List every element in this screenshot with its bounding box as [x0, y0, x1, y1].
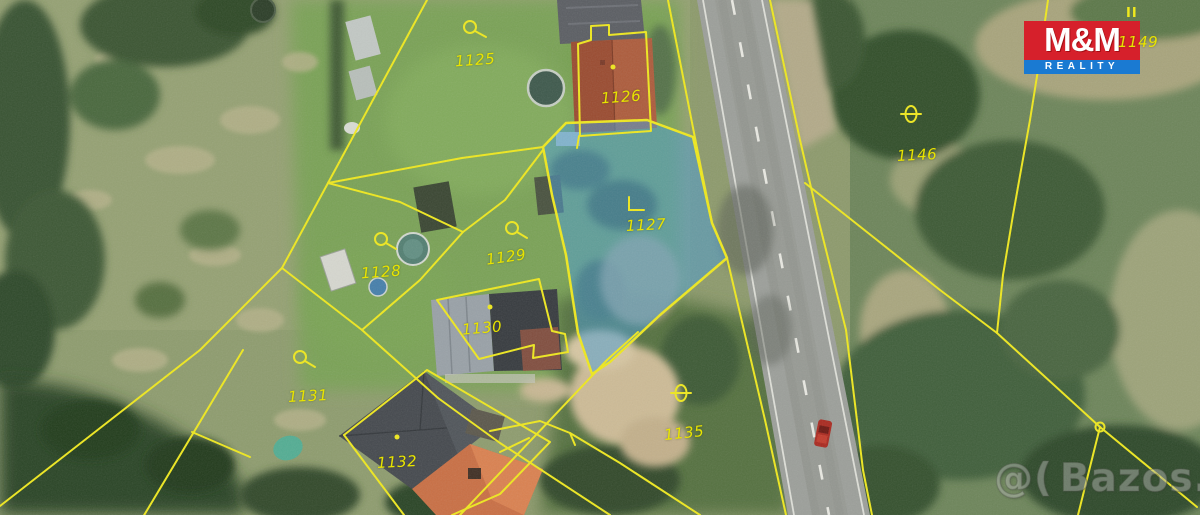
photo-grain: [0, 0, 1200, 515]
parcel-label-1125: 1125: [454, 50, 495, 71]
watermark-text: Bazos.cz: [1060, 456, 1200, 501]
parcel-label-1128: 1128: [360, 262, 401, 283]
aerial-listing-photo: 1125 1126 1127 1128 1129 1130 1131 1132 …: [0, 0, 1200, 515]
double-bar-mark: II: [1126, 6, 1138, 21]
parcel-label-1132: 1132: [377, 452, 418, 472]
parcel-label-1127: 1127: [626, 215, 667, 235]
logo-reality-text: REALITY: [1024, 60, 1140, 74]
parcel-label-1149: 1149: [1118, 33, 1158, 51]
parcel-label-1146: 1146: [897, 145, 938, 165]
bazos-watermark: @(Bazos.cz: [994, 456, 1200, 501]
aerial-map-canvas: [0, 0, 1200, 515]
watermark-at-icon: @(: [994, 456, 1053, 501]
parcel-label-1130: 1130: [461, 317, 503, 338]
parcel-label-1131: 1131: [288, 386, 329, 406]
parcel-label-1126: 1126: [600, 87, 641, 108]
